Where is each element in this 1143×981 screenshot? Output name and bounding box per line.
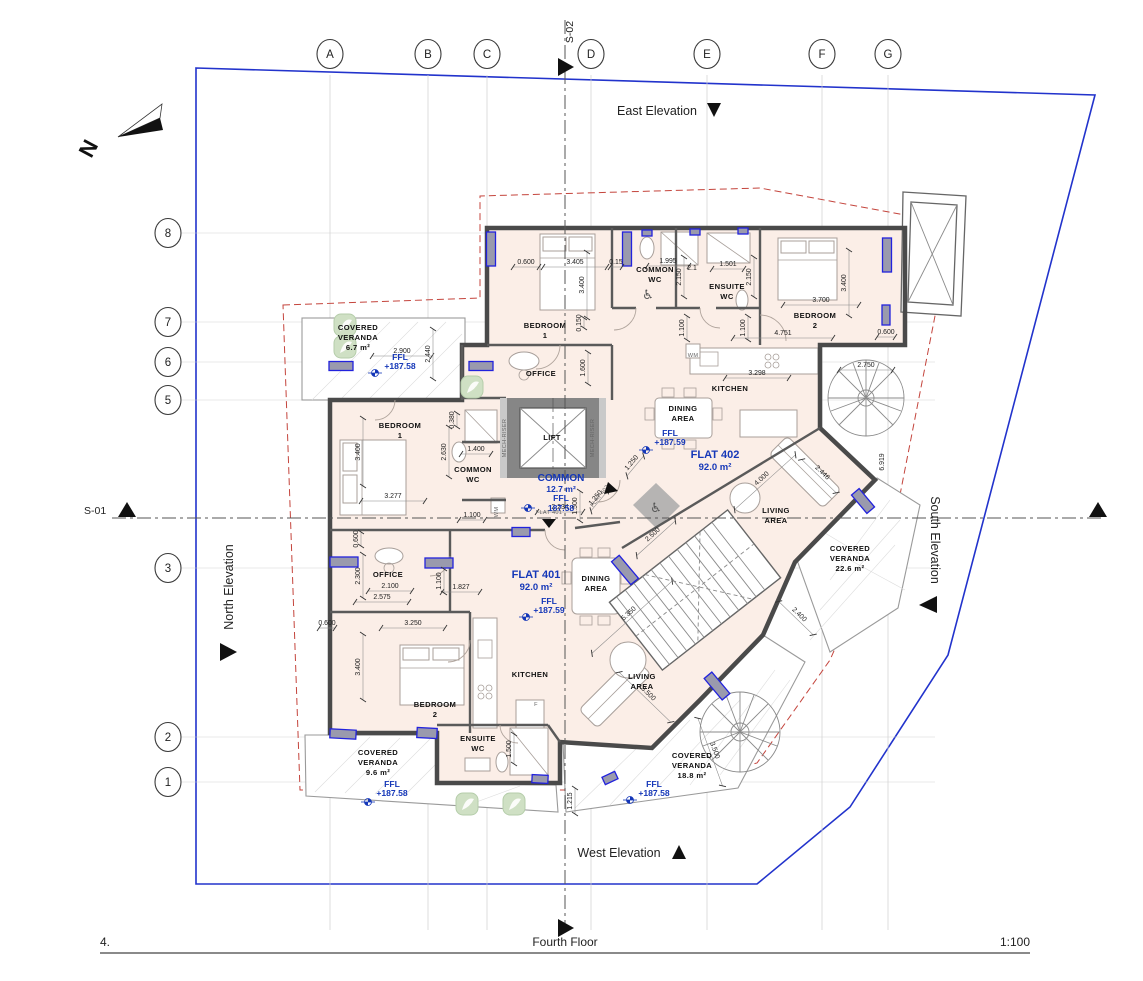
wheelchair-icon: ♿ [642, 287, 654, 302]
svg-text:+187.59: +187.59 [533, 605, 565, 615]
svg-text:B: B [424, 49, 432, 61]
svg-text:COMMON: COMMON [538, 473, 585, 484]
room-label: ENSUITE [709, 282, 745, 291]
svg-text:WC: WC [648, 275, 662, 284]
grid-bubble-row: 8 [155, 219, 181, 248]
section-arrow-icon [1089, 502, 1107, 517]
room-label: WC [466, 475, 480, 484]
svg-text:1: 1 [165, 777, 171, 789]
svg-text:3.400: 3.400 [355, 443, 362, 460]
room-label: KITCHEN [512, 670, 549, 679]
svg-text:VERANDA: VERANDA [358, 758, 398, 767]
veranda-label: VERANDA [338, 333, 378, 342]
sheet-title: Fourth Floor [532, 935, 597, 949]
svg-text:1.600: 1.600 [580, 359, 587, 376]
svg-text:3.400: 3.400 [841, 274, 848, 291]
svg-text:COVERED: COVERED [830, 544, 870, 553]
room-label: LIVING [762, 506, 790, 515]
svg-text:+187.59: +187.59 [654, 437, 686, 447]
svg-text:AREA: AREA [671, 414, 694, 423]
small-label: MECH-RISER [590, 419, 596, 457]
svg-text:DINING: DINING [582, 574, 611, 583]
svg-text:F: F [818, 49, 825, 61]
svg-text:E: E [703, 49, 711, 61]
room-label: AREA [764, 516, 787, 525]
svg-text:9.6 m²: 9.6 m² [366, 768, 390, 777]
svg-text:F: F [534, 702, 538, 708]
dimension-text: 6.919 [879, 453, 886, 470]
svg-text:D: D [587, 49, 595, 61]
room-label: AREA [630, 682, 653, 691]
svg-text:2.150: 2.150 [676, 268, 683, 285]
svg-text:+187.58: +187.58 [376, 788, 408, 798]
svg-text:COVERED: COVERED [358, 748, 398, 757]
svg-text:BEDROOM: BEDROOM [414, 700, 456, 709]
service-shaft [901, 192, 966, 316]
svg-text:LIFT: LIFT [543, 433, 561, 442]
section-s02-label: S-02 [564, 21, 576, 43]
level-label: +187.58 [376, 788, 408, 798]
svg-text:WC: WC [471, 744, 485, 753]
level-label: +187.58 [384, 361, 416, 371]
svg-text:FLAT 402: FLAT 402 [691, 449, 740, 461]
room-label: WC [720, 292, 734, 301]
room-label: COMMON [454, 465, 492, 474]
room-label: ENSUITE [460, 734, 496, 743]
level-label: 92.0 m² [520, 582, 553, 593]
window [882, 305, 890, 325]
svg-text:0.600: 0.600 [517, 259, 534, 266]
window [329, 362, 353, 371]
svg-text:8: 8 [165, 228, 171, 240]
veranda-label: COVERED [672, 751, 712, 760]
bed-bedroom1-left [340, 440, 406, 515]
grid-bubble-row: 3 [155, 554, 181, 583]
svg-text:MECH-RISER: MECH-RISER [590, 419, 596, 457]
level-label: 92.0 m² [699, 462, 732, 473]
svg-text:+187.58: +187.58 [384, 361, 416, 371]
svg-text:KITCHEN: KITCHEN [712, 384, 749, 393]
svg-text:3.250: 3.250 [404, 620, 421, 627]
level-label: +187.59 [533, 605, 565, 615]
svg-text:ENSUITE: ENSUITE [709, 282, 745, 291]
svg-text:1.100: 1.100 [436, 572, 443, 589]
room-label: 1 [398, 431, 403, 440]
small-label: WM [688, 353, 699, 359]
east-elevation-arrow-icon [707, 103, 721, 117]
svg-text:92.0 m²: 92.0 m² [699, 462, 732, 473]
bed-bedroom2-lower [400, 645, 464, 705]
svg-text:AREA: AREA [764, 516, 787, 525]
svg-text:VERANDA: VERANDA [672, 761, 712, 770]
floor-plan-sheet: ♿ ♿ [0, 0, 1143, 981]
grid-bubble-row: 1 [155, 768, 181, 797]
svg-text:BEDROOM: BEDROOM [379, 421, 421, 430]
grid-bubble-column: C [474, 40, 500, 69]
svg-text:3.400: 3.400 [355, 658, 362, 675]
svg-text:1.215: 1.215 [567, 792, 574, 809]
east-elevation-label: East Elevation [617, 104, 697, 118]
room-label: BEDROOM [524, 321, 566, 330]
small-label: FLAT 401 [536, 510, 562, 516]
svg-text:6: 6 [165, 357, 171, 369]
svg-text:AREA: AREA [584, 584, 607, 593]
svg-text:LIVING: LIVING [762, 506, 790, 515]
veranda-6-7 [302, 318, 465, 400]
plant-icon [503, 793, 525, 815]
window [642, 230, 652, 236]
svg-text:KITCHEN: KITCHEN [512, 670, 549, 679]
room-label: BEDROOM [794, 311, 836, 320]
window [690, 229, 700, 235]
dimension-text: 0.600 [317, 620, 337, 631]
svg-text:WC: WC [466, 475, 480, 484]
svg-text:2.1: 2.1 [687, 265, 697, 272]
svg-text:6.919: 6.919 [879, 453, 886, 470]
room-label: DINING [669, 404, 698, 413]
wheelchair-icon: ♿ [650, 500, 662, 515]
svg-text:BEDROOM: BEDROOM [524, 321, 566, 330]
svg-text:COMMON: COMMON [454, 465, 492, 474]
plant-icon [461, 376, 483, 398]
veranda-label: VERANDA [830, 554, 870, 563]
svg-text:+187.58: +187.58 [638, 788, 670, 798]
window [512, 528, 530, 537]
window [883, 238, 892, 272]
grid-bubble-column: E [694, 40, 720, 69]
window [425, 558, 453, 568]
grid-bubble-column: F [809, 40, 835, 69]
footer: 4. Fourth Floor 1:100 [100, 935, 1030, 953]
svg-text:1.100: 1.100 [740, 319, 747, 336]
veranda-label: 9.6 m² [366, 768, 390, 777]
svg-text:1.100: 1.100 [679, 319, 686, 336]
window [532, 775, 548, 784]
svg-text:2: 2 [813, 321, 818, 330]
room-label: OFFICE [526, 369, 556, 378]
room-label: 2 [813, 321, 818, 330]
small-label: MECH-RISER [502, 419, 508, 457]
svg-text:OFFICE: OFFICE [373, 570, 403, 579]
window [469, 362, 493, 371]
sheet-scale: 1:100 [1000, 935, 1030, 949]
window [330, 557, 358, 567]
svg-text:WM: WM [688, 353, 699, 359]
svg-text:DINING: DINING [669, 404, 698, 413]
west-elevation-arrow-icon [672, 845, 686, 859]
svg-text:2.750: 2.750 [857, 362, 874, 369]
svg-text:2.440: 2.440 [425, 345, 432, 362]
svg-text:1.100: 1.100 [463, 512, 480, 519]
veranda-label: COVERED [358, 748, 398, 757]
svg-text:2.150: 2.150 [746, 268, 753, 285]
floor-plan-drawing: ♿ ♿ [0, 0, 1143, 981]
svg-text:1.501: 1.501 [719, 261, 736, 268]
section-arrow-icon [558, 58, 574, 76]
svg-text:2: 2 [165, 732, 171, 744]
room-label: WC [648, 275, 662, 284]
svg-text:COMMON: COMMON [636, 265, 674, 274]
svg-text:7: 7 [165, 317, 171, 329]
svg-text:18.8 m²: 18.8 m² [678, 771, 707, 780]
veranda-label: 18.8 m² [678, 771, 707, 780]
room-label: 1 [543, 331, 548, 340]
room-label: LIFT [543, 433, 561, 442]
north-label: N [74, 136, 104, 162]
svg-text:1.500: 1.500 [506, 740, 513, 757]
grid-bubble-row: 7 [155, 308, 181, 337]
north-elevation-arrow-icon [220, 643, 237, 661]
svg-text:C: C [483, 49, 491, 61]
svg-text:2.575: 2.575 [373, 594, 390, 601]
grid-bubble-row: 6 [155, 348, 181, 377]
svg-text:2: 2 [433, 710, 438, 719]
svg-text:VERANDA: VERANDA [830, 554, 870, 563]
north-elevation-label: North Elevation [222, 544, 236, 630]
window [623, 232, 632, 266]
svg-text:1.400: 1.400 [467, 446, 484, 453]
svg-text:3.298: 3.298 [748, 370, 765, 377]
veranda-label: 6.7 m² [346, 343, 370, 352]
grid-bubble-column: D [578, 40, 604, 69]
bed-bedroom2-upper [778, 238, 837, 300]
svg-text:2.300: 2.300 [355, 567, 362, 584]
veranda-label: VERANDA [358, 758, 398, 767]
svg-text:1.827: 1.827 [452, 584, 469, 591]
svg-text:2.630: 2.630 [441, 443, 448, 460]
south-elevation-label: South Elevation [928, 496, 942, 584]
room-label: BEDROOM [414, 700, 456, 709]
svg-text:A: A [326, 49, 334, 61]
room-label: 2 [433, 710, 438, 719]
grid-bubble-column: A [317, 40, 343, 69]
level-label: FLAT 401 [512, 569, 561, 581]
svg-text:3.405: 3.405 [566, 259, 583, 266]
svg-text:FFL: FFL [553, 493, 569, 503]
veranda-label: COVERED [338, 323, 378, 332]
svg-text:3.700: 3.700 [812, 297, 829, 304]
svg-text:0.600: 0.600 [318, 620, 335, 627]
svg-text:COVERED: COVERED [672, 751, 712, 760]
svg-text:WM: WM [494, 507, 500, 518]
svg-text:92.0 m²: 92.0 m² [520, 582, 553, 593]
level-label: +187.59 [654, 437, 686, 447]
room-label: LIVING [628, 672, 656, 681]
grid-bubble-row: 5 [155, 386, 181, 415]
small-label: F [534, 702, 538, 708]
veranda-label: 22.6 m² [836, 564, 865, 573]
svg-text:BEDROOM: BEDROOM [794, 311, 836, 320]
spiral-stair-lower [700, 692, 780, 772]
level-label: FFL [553, 493, 569, 503]
room-label: AREA [671, 414, 694, 423]
svg-text:ENSUITE: ENSUITE [460, 734, 496, 743]
svg-text:OFFICE: OFFICE [526, 369, 556, 378]
section-arrow-icon [118, 502, 136, 517]
north-arrow: N [74, 104, 163, 161]
section-s01-label: S-01 [84, 505, 106, 517]
svg-text:MECH-RISER: MECH-RISER [502, 419, 508, 457]
svg-text:1.995: 1.995 [659, 258, 676, 265]
svg-text:AREA: AREA [630, 682, 653, 691]
small-label: WM [494, 507, 500, 518]
south-elevation-arrow-icon [919, 596, 937, 613]
grid-bubble-row: 2 [155, 723, 181, 752]
svg-text:LIVING: LIVING [628, 672, 656, 681]
window [330, 729, 356, 739]
window [738, 228, 748, 234]
svg-text:4.751: 4.751 [774, 330, 791, 337]
svg-text:0.600: 0.600 [877, 329, 894, 336]
level-label: COMMON [538, 473, 585, 484]
svg-text:COVERED: COVERED [338, 323, 378, 332]
window [417, 727, 437, 738]
svg-text:3.400: 3.400 [579, 276, 586, 293]
grid-bubble-column: G [875, 40, 901, 69]
svg-text:WC: WC [720, 292, 734, 301]
room-label: COMMON [636, 265, 674, 274]
level-label: FLAT 402 [691, 449, 740, 461]
svg-text:22.6 m²: 22.6 m² [836, 564, 865, 573]
svg-text:3: 3 [165, 563, 171, 575]
room-label: AREA [584, 584, 607, 593]
svg-text:1: 1 [398, 431, 403, 440]
veranda-label: COVERED [830, 544, 870, 553]
veranda-label: VERANDA [672, 761, 712, 770]
room-label: DINING [582, 574, 611, 583]
level-label: +187.58 [638, 788, 670, 798]
svg-text:FLAT 401: FLAT 401 [512, 569, 561, 581]
svg-text:G: G [884, 49, 893, 61]
sheet-number: 4. [100, 935, 110, 949]
grid-bubble-column: B [415, 40, 441, 69]
svg-text:5: 5 [165, 395, 171, 407]
svg-text:FLAT 401: FLAT 401 [536, 510, 562, 516]
plant-icon [456, 793, 478, 815]
svg-text:VERANDA: VERANDA [338, 333, 378, 342]
svg-text:6.7 m²: 6.7 m² [346, 343, 370, 352]
svg-text:1: 1 [543, 331, 548, 340]
room-label: BEDROOM [379, 421, 421, 430]
svg-text:3.277: 3.277 [384, 493, 401, 500]
west-elevation-label: West Elevation [577, 846, 660, 860]
room-label: KITCHEN [712, 384, 749, 393]
room-label: WC [471, 744, 485, 753]
room-label: OFFICE [373, 570, 403, 579]
dimension-text: 2.1 [687, 265, 697, 272]
svg-text:2.100: 2.100 [381, 583, 398, 590]
window [487, 232, 496, 266]
